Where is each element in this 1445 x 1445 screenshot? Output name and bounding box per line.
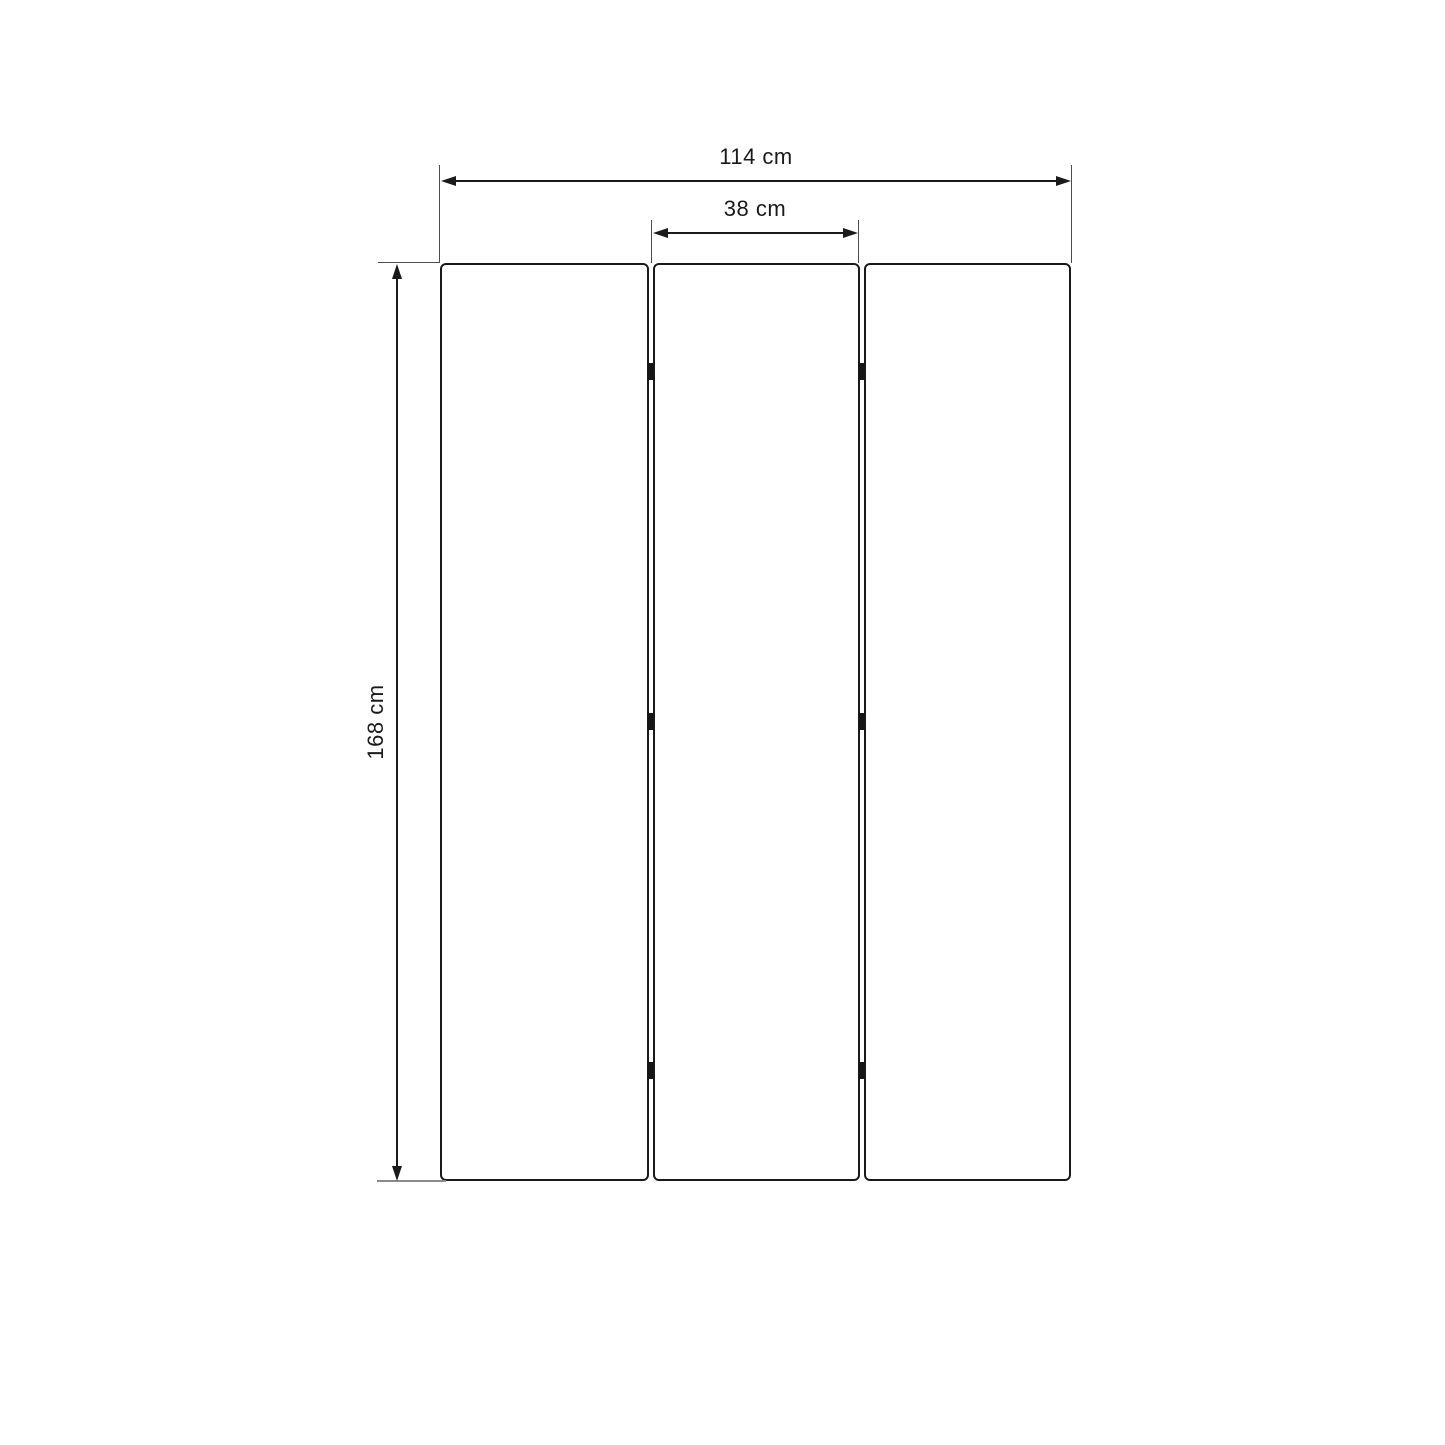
extension-line-height-bottom [377, 1180, 446, 1182]
hinge-left-bottom [647, 1062, 654, 1079]
total-width-label: 114 cm [719, 144, 793, 170]
hinge-right-middle [858, 713, 865, 730]
dimension-diagram: 114 cm 38 cm 168 cm [0, 0, 1445, 1445]
hinge-left-middle [647, 713, 654, 730]
panel-width-label: 38 cm [724, 196, 786, 222]
extension-line-height-top [378, 262, 440, 263]
arrowhead-down-icon [392, 1166, 402, 1181]
panel-width-dimension-line [656, 232, 855, 234]
arrowhead-right-icon [1056, 176, 1071, 186]
screen-panel-middle [653, 263, 860, 1181]
hinge-right-bottom [858, 1062, 865, 1079]
hinge-right-top [858, 363, 865, 380]
height-label: 168 cm [363, 684, 389, 759]
arrowhead-left-icon [653, 228, 668, 238]
screen-panel-right [864, 263, 1071, 1181]
screen-panel-left [440, 263, 649, 1181]
extension-line-total-width-left [439, 165, 440, 263]
extension-line-panel-width-right [858, 220, 859, 263]
height-dimension-line [396, 267, 398, 1177]
arrowhead-up-icon [392, 264, 402, 279]
arrowhead-right-icon [843, 228, 858, 238]
extension-line-panel-width-left [651, 220, 652, 263]
hinge-left-top [647, 363, 654, 380]
total-width-dimension-line [444, 180, 1068, 182]
arrowhead-left-icon [441, 176, 456, 186]
extension-line-total-width-right [1071, 165, 1072, 263]
